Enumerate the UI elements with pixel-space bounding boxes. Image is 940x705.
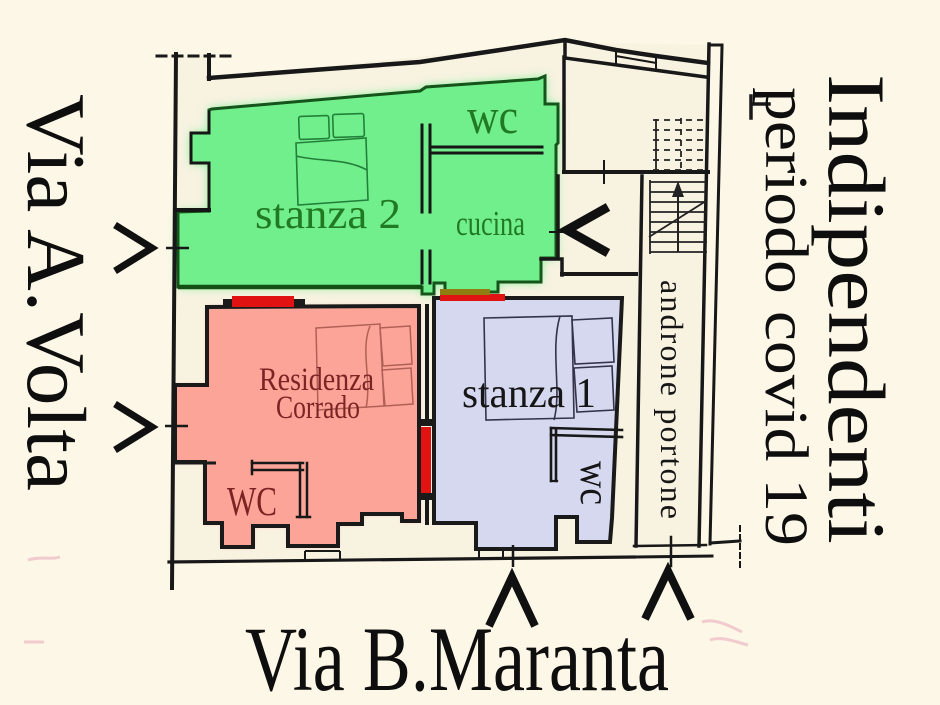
svg-text:Via A.Volta: Via A.Volta [9, 94, 102, 491]
svg-text:stanza 2: stanza 2 [255, 192, 401, 238]
svg-text:Corrado: Corrado [276, 390, 360, 426]
svg-text:Via B.Maranta: Via B.Maranta [245, 608, 669, 705]
svg-text:stanza 1: stanza 1 [462, 371, 596, 417]
svg-text:wc: wc [467, 88, 518, 144]
svg-text:WC: WC [227, 478, 277, 524]
svg-text:cucina: cucina [456, 204, 525, 243]
svg-text:wc: wc [571, 461, 617, 505]
svg-text:androne portone: androne portone [654, 280, 690, 519]
svg-text:Indipendenti: Indipendenti [811, 74, 902, 544]
svg-text:periodo covid 19: periodo covid 19 [752, 87, 819, 546]
